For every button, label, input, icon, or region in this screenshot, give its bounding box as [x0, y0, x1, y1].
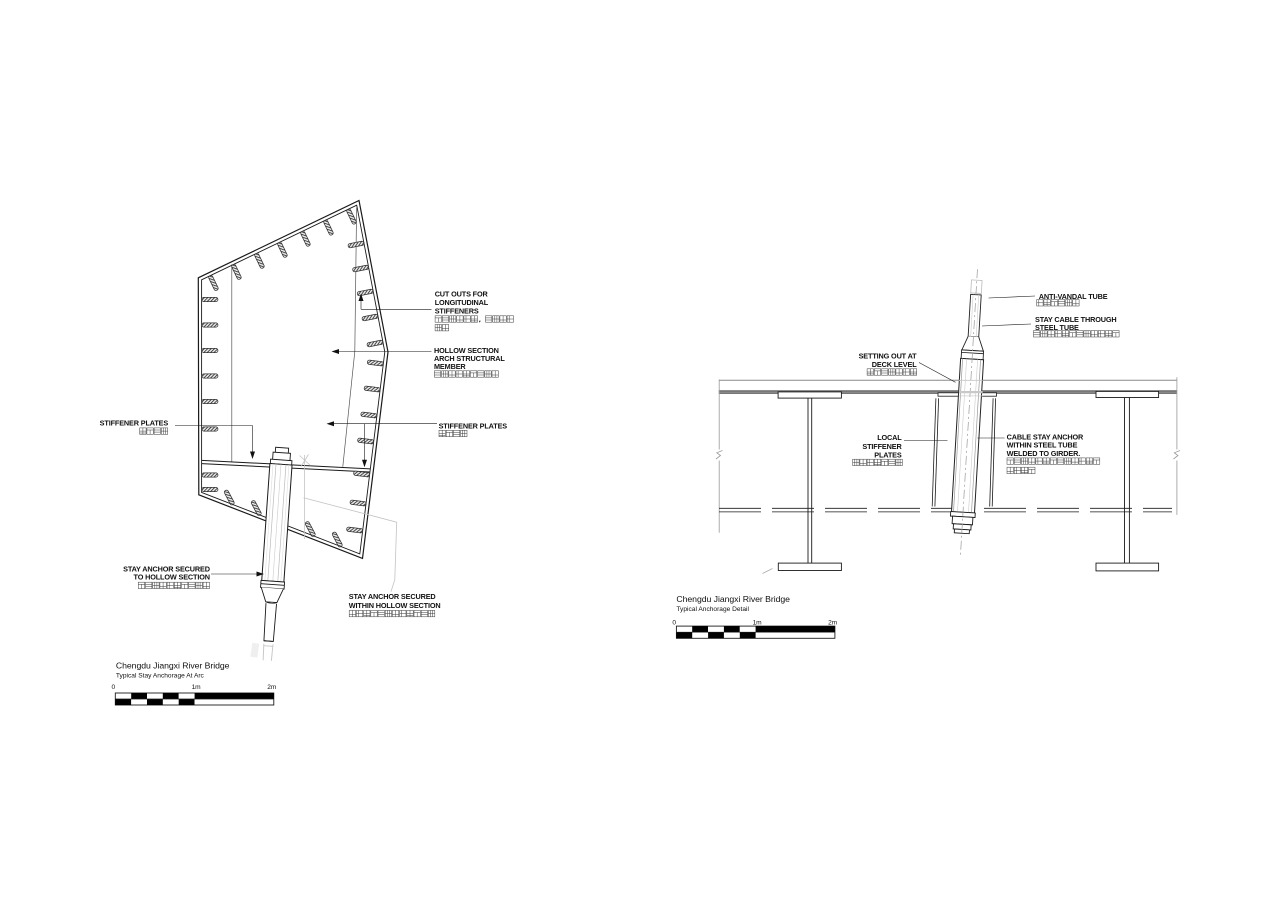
svg-text:STAY ANCHOR SECURED: STAY ANCHOR SECURED	[349, 592, 436, 601]
svg-text:DECK LEVEL: DECK LEVEL	[872, 360, 917, 369]
svg-text:Typical Anchorage Detail: Typical Anchorage Detail	[676, 606, 749, 613]
svg-text:Chengdu Jiangxi River Bridge: Chengdu Jiangxi River Bridge	[116, 660, 230, 670]
svg-text:Typical Stay Anchorage At Arc: Typical Stay Anchorage At Arc	[116, 673, 205, 680]
svg-text:0: 0	[672, 619, 676, 626]
svg-text:STIFFENER PLATES: STIFFENER PLATES	[439, 421, 508, 430]
svg-text:WITHIN HOLLOW SECTION: WITHIN HOLLOW SECTION	[349, 601, 441, 610]
svg-text:1m: 1m	[753, 619, 763, 626]
svg-text:Chengdu Jiangxi River Bridge: Chengdu Jiangxi River Bridge	[676, 594, 790, 604]
svg-text:PLATES: PLATES	[874, 451, 902, 460]
svg-text:LOCAL: LOCAL	[877, 433, 902, 442]
svg-text:STIFFENER PLATES: STIFFENER PLATES	[100, 419, 169, 428]
svg-text:TO HOLLOW SECTION: TO HOLLOW SECTION	[134, 573, 210, 582]
svg-text:1m: 1m	[192, 684, 202, 691]
svg-text:MEMBER: MEMBER	[434, 362, 466, 371]
svg-text:STIFFENER: STIFFENER	[862, 442, 902, 451]
svg-text:WELDED TO GIRDER.: WELDED TO GIRDER.	[1007, 449, 1081, 458]
svg-text:2m: 2m	[267, 684, 277, 691]
svg-text:STIFFENERS: STIFFENERS	[435, 307, 479, 316]
svg-text:0: 0	[112, 684, 116, 691]
svg-text:2m: 2m	[828, 619, 838, 626]
